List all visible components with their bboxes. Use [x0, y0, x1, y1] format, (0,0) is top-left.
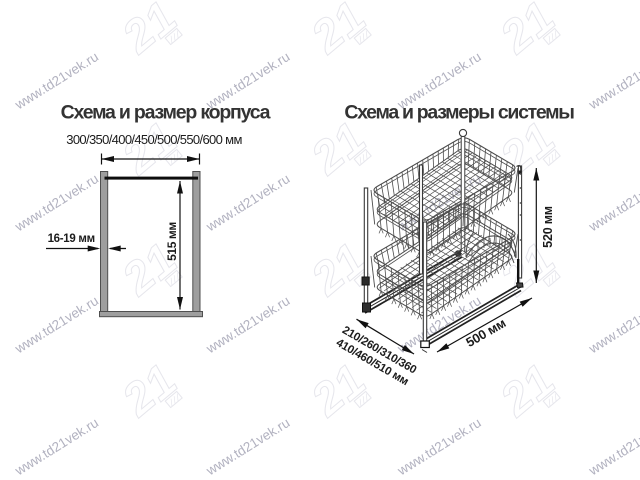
svg-text:www.td21vek.ru: www.td21vek.ru — [12, 293, 102, 357]
svg-text:www.td21vek.ru: www.td21vek.ru — [203, 293, 293, 357]
svg-text:www.td21vek.ru: www.td21vek.ru — [394, 415, 484, 479]
svg-text:www.td21vek.ru: www.td21vek.ru — [203, 171, 293, 235]
svg-text:www.td21vek.ru: www.td21vek.ru — [585, 415, 640, 479]
svg-text:www.td21vek.ru: www.td21vek.ru — [12, 415, 102, 479]
svg-text:Схема и размер корпуса: Схема и размер корпуса — [61, 102, 271, 124]
svg-text:www.td21vek.ru: www.td21vek.ru — [585, 171, 640, 235]
svg-text:www.td21vek.ru: www.td21vek.ru — [585, 293, 640, 357]
svg-text:Схема и размеры системы: Схема и размеры системы — [344, 102, 574, 124]
svg-text:16-19 мм: 16-19 мм — [48, 233, 95, 245]
svg-text:www.td21vek.ru: www.td21vek.ru — [203, 415, 293, 479]
svg-text:300/350/400/450/500/550/600 мм: 300/350/400/450/500/550/600 мм — [66, 132, 242, 147]
svg-text:520 мм: 520 мм — [541, 206, 555, 248]
svg-text:515 мм: 515 мм — [165, 222, 179, 261]
svg-text:www.td21vek.ru: www.td21vek.ru — [585, 49, 640, 113]
svg-text:www.td21vek.ru: www.td21vek.ru — [12, 171, 102, 235]
